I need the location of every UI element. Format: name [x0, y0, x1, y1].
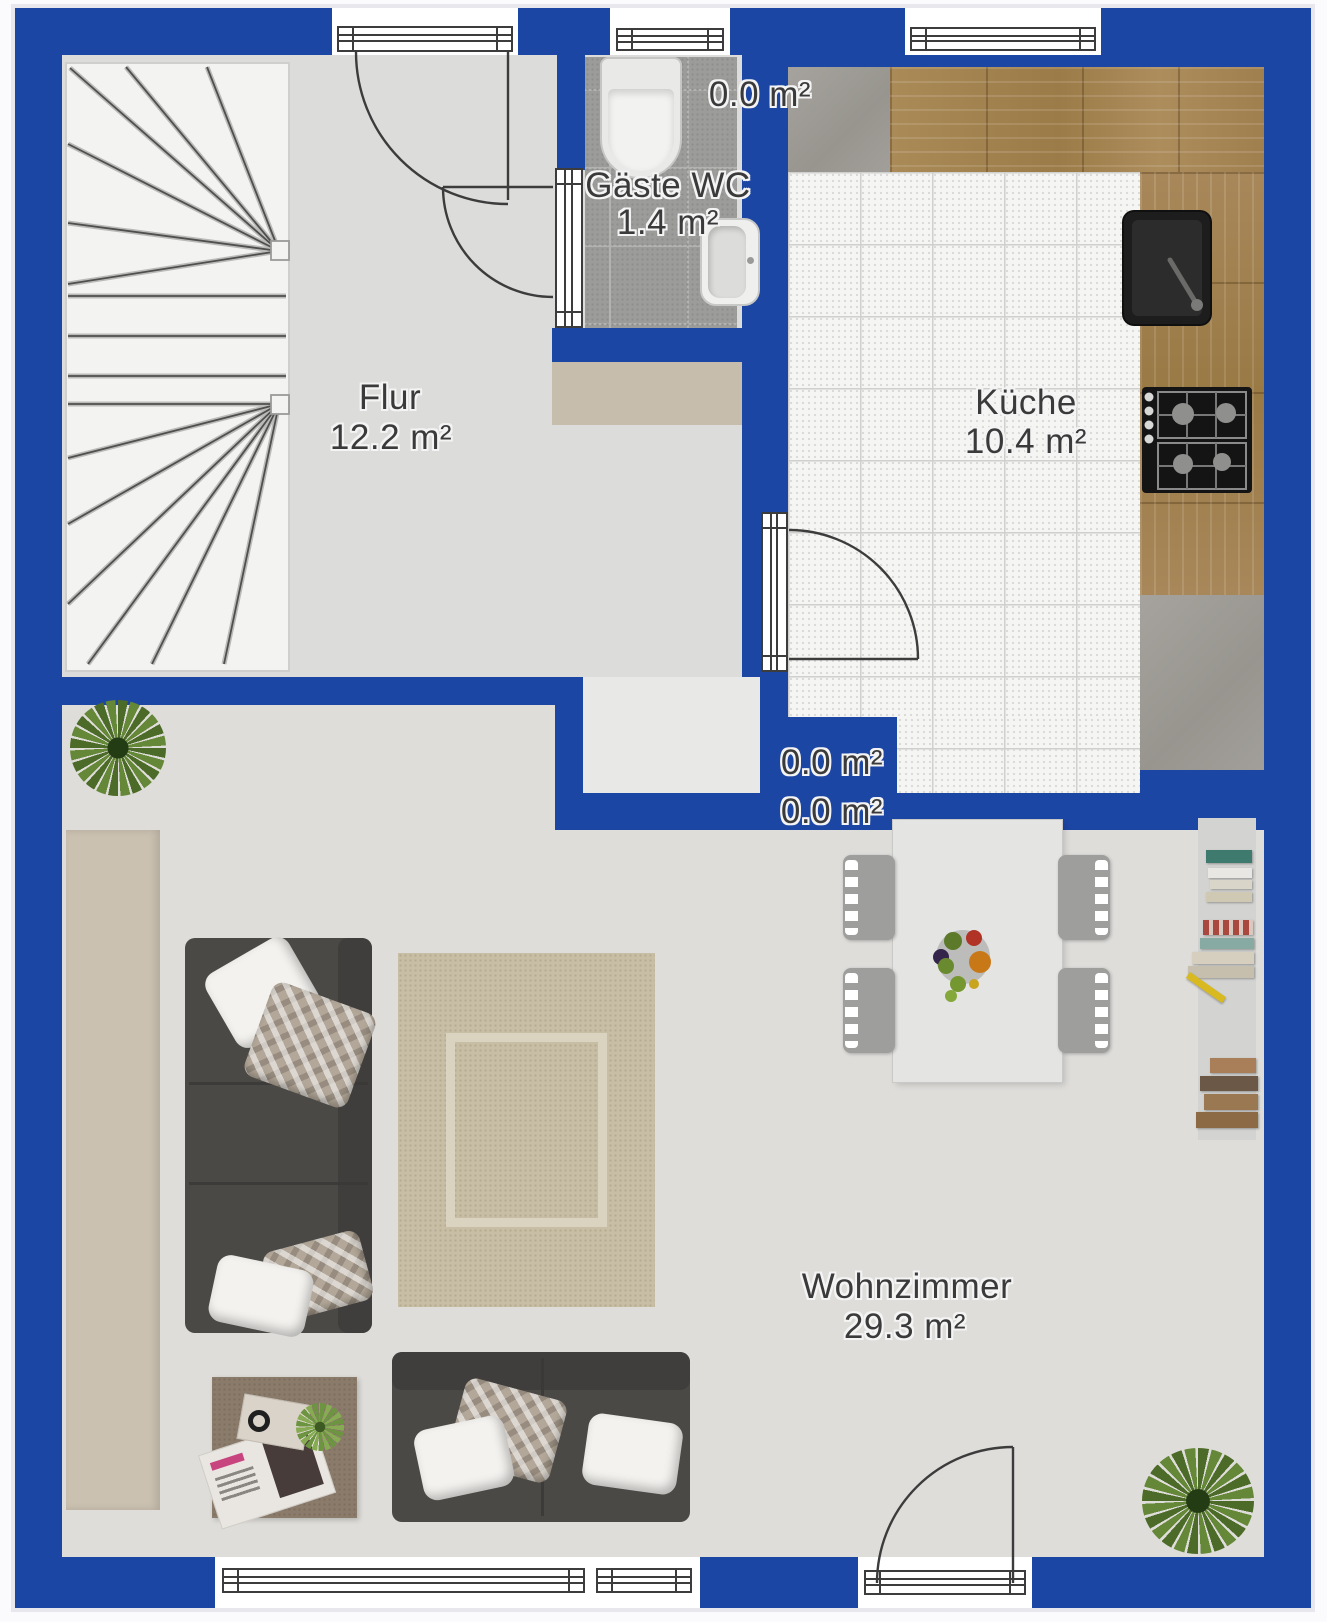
sofa-large [185, 938, 372, 1333]
wc-left-wall [557, 55, 585, 170]
kitchen-door-frame [761, 512, 788, 672]
book [1208, 868, 1252, 878]
kitchen-window [910, 27, 1096, 51]
toilet [600, 57, 682, 179]
room-label-kueche: Küche [975, 383, 1077, 423]
room-floor-kueche-lower [897, 717, 1140, 793]
terrace-door-frame [864, 1570, 1026, 1595]
counter-concrete-bottom [1140, 595, 1264, 770]
wc-window [616, 28, 724, 51]
room-area-gaeste-wc: 1.4 m² [617, 203, 719, 243]
kitchen-counter-top [890, 67, 1264, 172]
room-area-flur: 12.2 m² [330, 418, 452, 458]
book [1203, 920, 1253, 935]
cup [248, 1410, 270, 1432]
book [1210, 880, 1252, 889]
book [1196, 1112, 1258, 1128]
potted-plant-top-left [70, 700, 166, 796]
book [1200, 938, 1254, 949]
floor-plan-canvas: Flur 12.2 m² Gäste WC 1.4 m² Küche 10.4 … [0, 0, 1327, 1622]
installation-block [552, 362, 742, 425]
magazine-text [215, 1466, 261, 1503]
sofa-small [392, 1352, 690, 1522]
magazine-title [210, 1453, 245, 1471]
sofa-cushion-seam [189, 1182, 368, 1185]
wc-bottom-wall [552, 328, 788, 362]
bookshelf [1198, 818, 1256, 1140]
book [1210, 1058, 1256, 1073]
wc-door-frame [555, 168, 583, 328]
book [1192, 952, 1254, 964]
pillow-white [580, 1412, 684, 1497]
book [1204, 1094, 1258, 1110]
stove [1142, 387, 1252, 493]
zero-area-label-top: 0.0 m² [709, 75, 811, 115]
table-plant [296, 1403, 344, 1451]
living-window-left [222, 1568, 585, 1593]
sideboard [66, 830, 160, 1510]
rug [398, 953, 655, 1307]
book [1188, 966, 1254, 978]
staircase [65, 62, 290, 672]
room-area-kueche: 10.4 m² [965, 422, 1087, 462]
dining-table [893, 820, 1062, 1082]
book [1206, 850, 1252, 863]
entrance-door-frame [337, 26, 513, 52]
book [1200, 1076, 1258, 1091]
dining-chair [843, 968, 895, 1053]
room-label-flur: Flur [359, 378, 421, 418]
living-window-right [596, 1568, 692, 1593]
book [1206, 892, 1252, 902]
room-label-wohnzimmer: Wohnzimmer [802, 1267, 1013, 1307]
pillow-white [412, 1413, 517, 1503]
dining-chair [1058, 968, 1110, 1053]
niche-zero-area [583, 677, 760, 793]
coffee-table [212, 1377, 357, 1518]
zero-area-label-mid-lower: 0.0 m² [781, 792, 883, 832]
room-area-wohnzimmer: 29.3 m² [844, 1307, 966, 1347]
potted-plant-bottom-right [1142, 1448, 1254, 1554]
kitchen-sink [1124, 212, 1210, 324]
room-label-gaeste-wc: Gäste WC [585, 166, 750, 206]
zero-area-label-mid-upper: 0.0 m² [781, 743, 883, 783]
dining-chair [1058, 855, 1110, 940]
dining-chair [843, 855, 895, 940]
